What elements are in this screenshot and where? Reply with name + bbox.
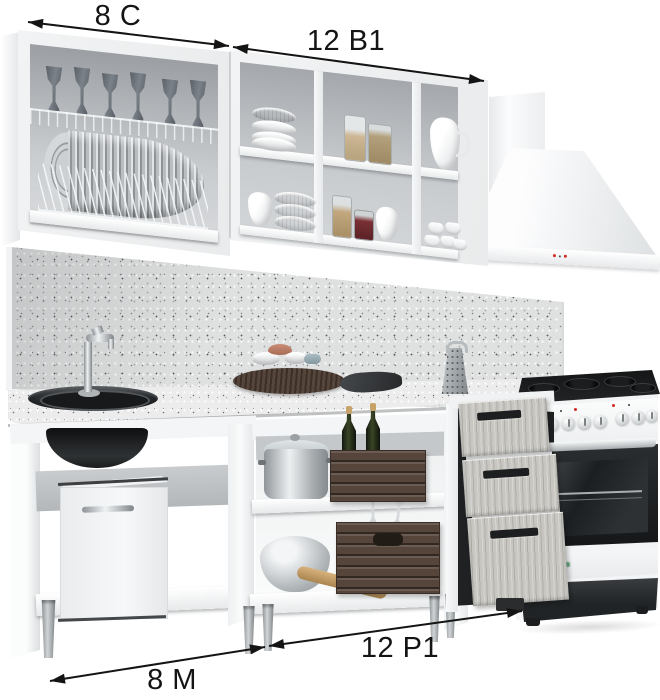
- hood-indicator-red: [553, 254, 556, 257]
- cooker-knob: [562, 417, 575, 430]
- sink-bowl-under-counter: [46, 428, 148, 468]
- drawer-handle: [477, 410, 521, 421]
- dimension-label-bottom-right: 12 Р1: [348, 632, 452, 665]
- cabinet-leg: [261, 604, 275, 651]
- wall-cabinet-dish-drainer: [18, 28, 230, 256]
- dimension-label-bottom-left: 8 М: [134, 664, 210, 697]
- wicker-tray: [233, 368, 345, 394]
- cooker-knob: [616, 412, 629, 425]
- grater-handle: [446, 341, 468, 353]
- burner-plate: [630, 383, 656, 393]
- wall-cabinet-side-panel: [2, 32, 20, 246]
- burner-plate: [564, 378, 600, 390]
- wine-glass: [158, 78, 182, 127]
- cooker-knob: [594, 415, 607, 428]
- indicator-light-red: [574, 408, 577, 411]
- wine-glass: [98, 73, 122, 121]
- faucet-column: [84, 342, 92, 392]
- bottle-cork: [346, 406, 352, 414]
- crate-handle-hole: [373, 533, 403, 546]
- pot-handle: [258, 460, 266, 465]
- pitcher-handle: [456, 131, 470, 159]
- grain-jar: [332, 195, 352, 239]
- open-shelves-interior: [240, 62, 458, 259]
- dimension-label-top-right: 12 В1: [296, 25, 396, 58]
- cooker-foot: [526, 618, 540, 626]
- tray-cup-blue: [304, 354, 321, 364]
- waste-bin-unit: [56, 470, 172, 622]
- shelf-divider: [412, 82, 421, 255]
- kitchen-set-render: 8 С 12 В1 8 М 12 Р1: [0, 0, 660, 700]
- cabinet-leg: [242, 606, 256, 654]
- wine-glass: [70, 66, 94, 117]
- indicator-dot: [560, 410, 562, 412]
- indicator-light-red: [612, 404, 615, 407]
- shelf-divider: [314, 71, 323, 244]
- faucet-spout-tip: [108, 339, 114, 349]
- cabinet-leg: [40, 600, 57, 658]
- drawer-unit-foot: [496, 598, 524, 611]
- wine-glass: [186, 79, 210, 130]
- splashback-left-edge: [6, 247, 12, 391]
- sink-cabinet-side-panel: [10, 422, 40, 658]
- drawer-front-2: [462, 454, 560, 517]
- hood-indicator-red2: [564, 255, 567, 258]
- indicator-dot: [628, 404, 630, 406]
- drawer-handle: [483, 468, 529, 479]
- bottle-cork: [370, 403, 376, 411]
- cooker-knob: [632, 411, 645, 424]
- storage-jar: [344, 114, 366, 163]
- cooker-foot: [636, 606, 648, 614]
- wine-glass: [42, 65, 66, 114]
- hood-button-dot: [559, 255, 561, 257]
- drawer-handle: [490, 528, 538, 539]
- white-jug: [376, 206, 398, 243]
- berry-jar: [354, 209, 374, 241]
- cooker-knob: [646, 410, 658, 422]
- small-jug: [248, 191, 272, 228]
- pot: [264, 449, 328, 499]
- cooker-knob: [578, 416, 591, 429]
- wine-glass: [126, 72, 150, 124]
- cabinet-seam: [229, 52, 231, 238]
- cup: [445, 222, 461, 236]
- drawer-front-3: [467, 512, 569, 606]
- storage-jar: [368, 123, 392, 166]
- dish-drainer-interior: [30, 44, 218, 245]
- drawer-front-1: [458, 397, 550, 457]
- drawer-unit-side: [446, 404, 458, 612]
- wall-cabinet-open-shelves: [230, 48, 488, 268]
- cup: [428, 222, 444, 236]
- wooden-crate: [330, 450, 426, 502]
- pot-lid-knob: [290, 434, 300, 441]
- dimension-label-top-left: 8 С: [74, 0, 162, 33]
- wooden-crate: [336, 522, 440, 594]
